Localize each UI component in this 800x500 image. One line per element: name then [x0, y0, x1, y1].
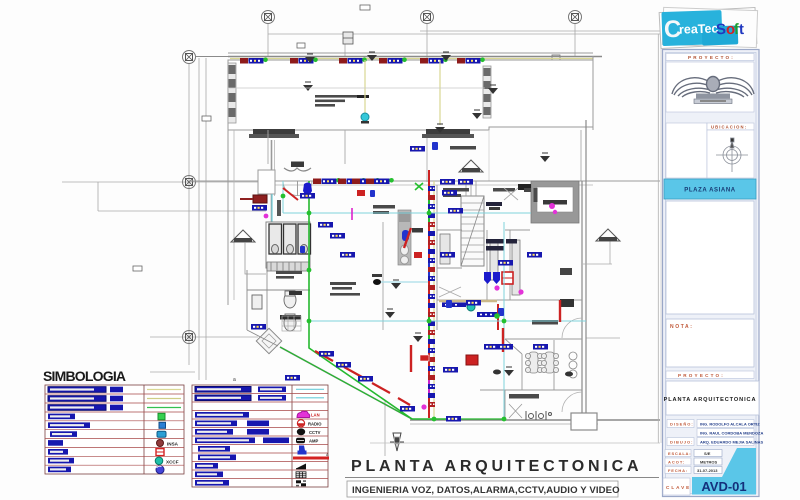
svg-text:INSA: INSA	[167, 442, 179, 447]
svg-text:NOTA:: NOTA:	[670, 324, 693, 330]
svg-text:XCCF: XCCF	[166, 459, 179, 464]
svg-text:PLAZA ASIANA: PLAZA ASIANA	[684, 188, 735, 194]
svg-text:a: a	[233, 377, 236, 383]
svg-text:ING. RODOLFO ALCALA ORTIZ: ING. RODOLFO ALCALA ORTIZ	[700, 421, 760, 426]
svg-text:ARQ. EDUARDO MEJIA SALINAS: ARQ. EDUARDO MEJIA SALINAS	[700, 439, 764, 444]
svg-text:INGENIERIA VOZ, DATOS,ALARMA,C: INGENIERIA VOZ, DATOS,ALARMA,CCTV,AUDIO …	[352, 485, 620, 496]
svg-text:ING. RAUL CORDOBA MENDOZA: ING. RAUL CORDOBA MENDOZA	[700, 430, 763, 435]
svg-text:ACOT:: ACOT:	[668, 460, 685, 465]
svg-text:S/E: S/E	[704, 451, 711, 456]
svg-text:CLAVE: CLAVE	[666, 485, 691, 490]
svg-text:DIBUJO:: DIBUJO:	[670, 439, 693, 444]
svg-text:PLANTA ARQUITECTONICA: PLANTA ARQUITECTONICA	[351, 458, 642, 475]
svg-text:ESCALA:: ESCALA:	[668, 451, 691, 456]
svg-text:A: A	[326, 453, 329, 457]
svg-text:RADIO: RADIO	[308, 422, 322, 427]
svg-text:t: t	[739, 21, 745, 38]
svg-text:AMP: AMP	[309, 438, 319, 443]
svg-text:DISEÑO:: DISEÑO:	[670, 421, 694, 426]
svg-text:S: S	[716, 21, 727, 38]
svg-text:UBICACION:: UBICACION:	[711, 125, 747, 130]
svg-text:LAN: LAN	[311, 413, 320, 418]
svg-text:PROYECTO:: PROYECTO:	[678, 373, 725, 378]
svg-text:PROYECTO:: PROYECTO:	[688, 55, 735, 60]
svg-text:AVD-01: AVD-01	[701, 479, 746, 494]
svg-text:FECHA:: FECHA:	[668, 468, 688, 473]
svg-text:reaTec: reaTec	[679, 21, 719, 36]
svg-text:PLANTA ARQUITECTONICA: PLANTA ARQUITECTONICA	[664, 397, 757, 403]
svg-text:METROS: METROS	[700, 460, 717, 465]
svg-text:CCTV: CCTV	[309, 430, 321, 435]
svg-text:SIMBOLOGIA: SIMBOLOGIA	[43, 368, 126, 384]
svg-text:31-07-2013: 31-07-2013	[697, 468, 718, 473]
